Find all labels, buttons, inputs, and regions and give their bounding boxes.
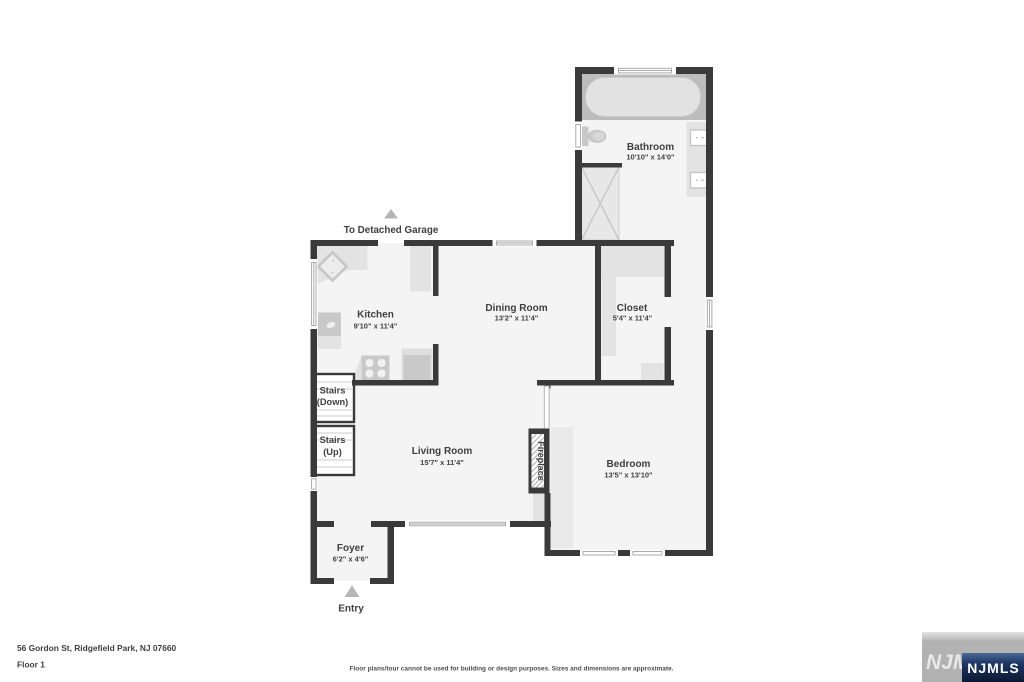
svg-text:Bathroom: Bathroom [627,142,674,153]
svg-text:Living Room: Living Room [412,446,473,457]
svg-text:13'5" x 13'10": 13'5" x 13'10" [604,471,653,480]
svg-text:(Down): (Down) [317,397,349,407]
svg-text:Entry: Entry [338,604,364,615]
svg-text:Floor plans/tour cannot be use: Floor plans/tour cannot be used for buil… [350,666,674,673]
svg-text:To Detached Garage: To Detached Garage [344,225,439,236]
svg-text:5'4" x 11'4": 5'4" x 11'4" [613,314,653,323]
svg-text:Bedroom: Bedroom [607,459,651,470]
svg-text:NJMLS: NJMLS [967,660,1019,676]
svg-text:Fireplace: Fireplace [536,441,546,481]
svg-text:Foyer: Foyer [337,543,364,554]
svg-text:56 Gordon St, Ridgefield Park,: 56 Gordon St, Ridgefield Park, NJ 07660 [17,643,177,653]
svg-text:Closet: Closet [617,303,648,314]
svg-text:9'10" x 11'4": 9'10" x 11'4" [354,322,398,331]
svg-text:Stairs: Stairs [320,386,346,396]
svg-text:15'7" x 11'4": 15'7" x 11'4" [420,458,464,467]
svg-text:Stairs: Stairs [320,435,346,445]
svg-text:Kitchen: Kitchen [357,310,394,321]
svg-text:10'10" x 14'0": 10'10" x 14'0" [626,153,675,162]
svg-text:6'2" x 4'6": 6'2" x 4'6" [333,555,369,564]
svg-text:Dining Room: Dining Room [485,303,547,314]
svg-text:13'2" x 11'4": 13'2" x 11'4" [495,314,539,323]
svg-text:(Up): (Up) [323,447,342,457]
svg-text:Floor 1: Floor 1 [17,660,45,670]
